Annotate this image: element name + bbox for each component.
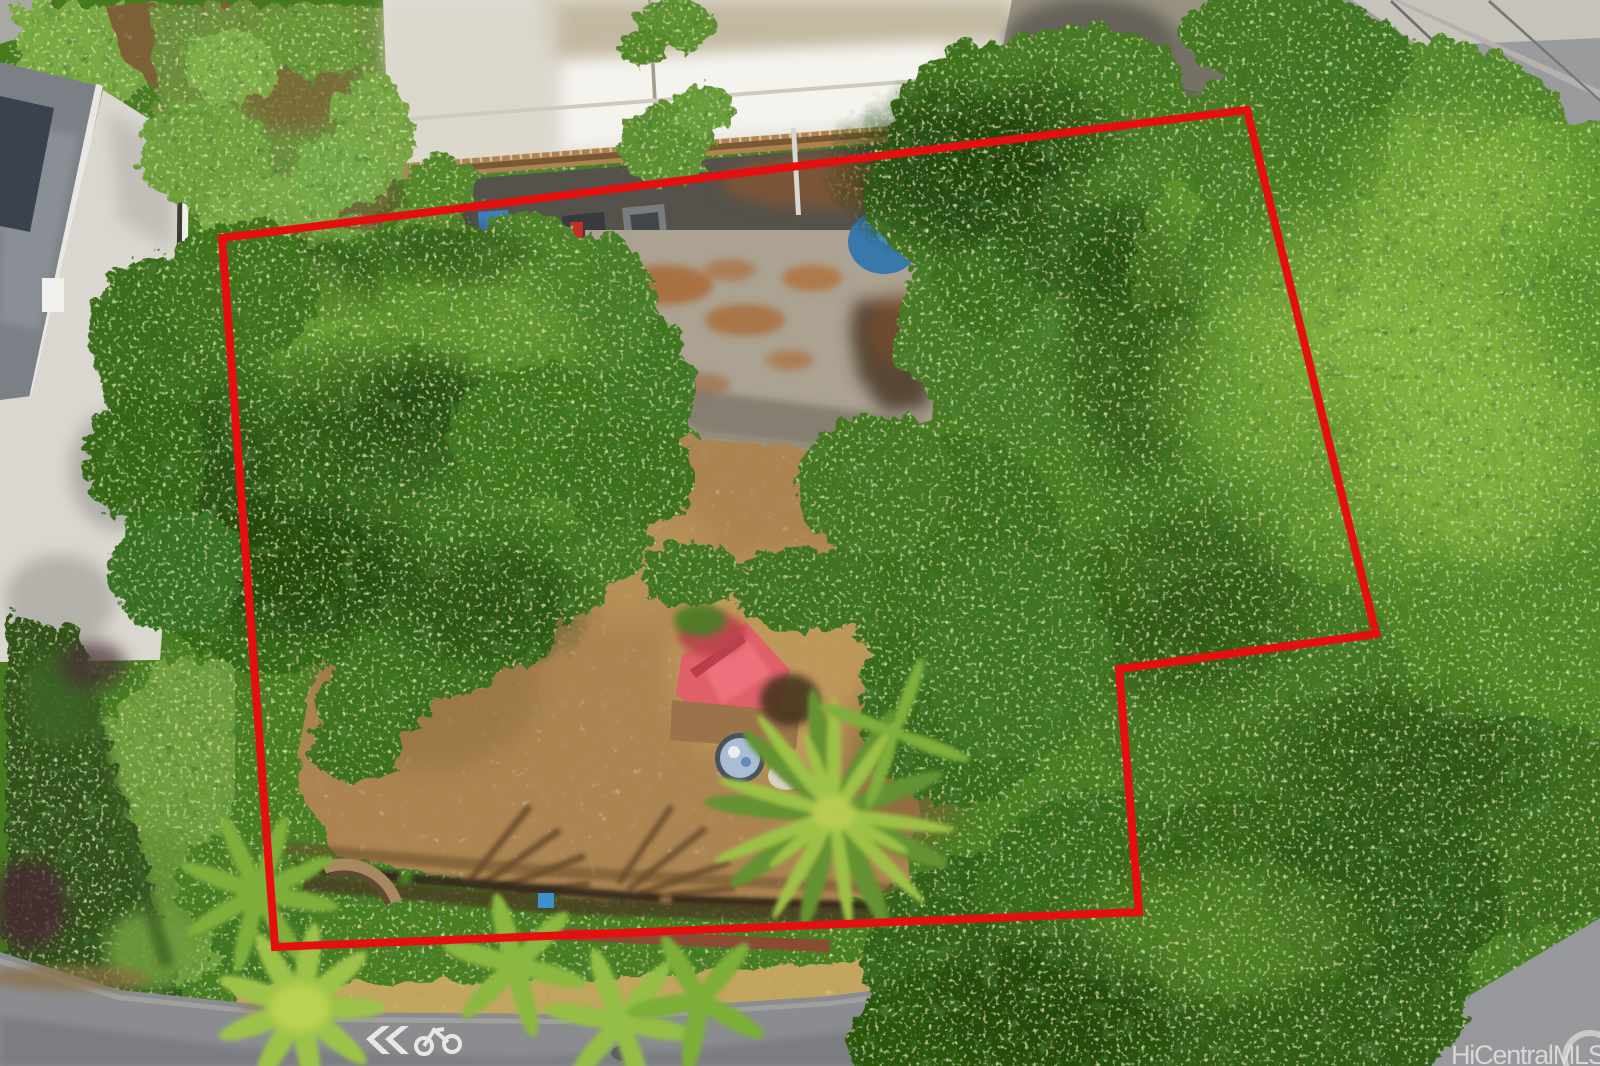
svg-text:HiCentralMLS: HiCentralMLS [1451,1040,1600,1066]
